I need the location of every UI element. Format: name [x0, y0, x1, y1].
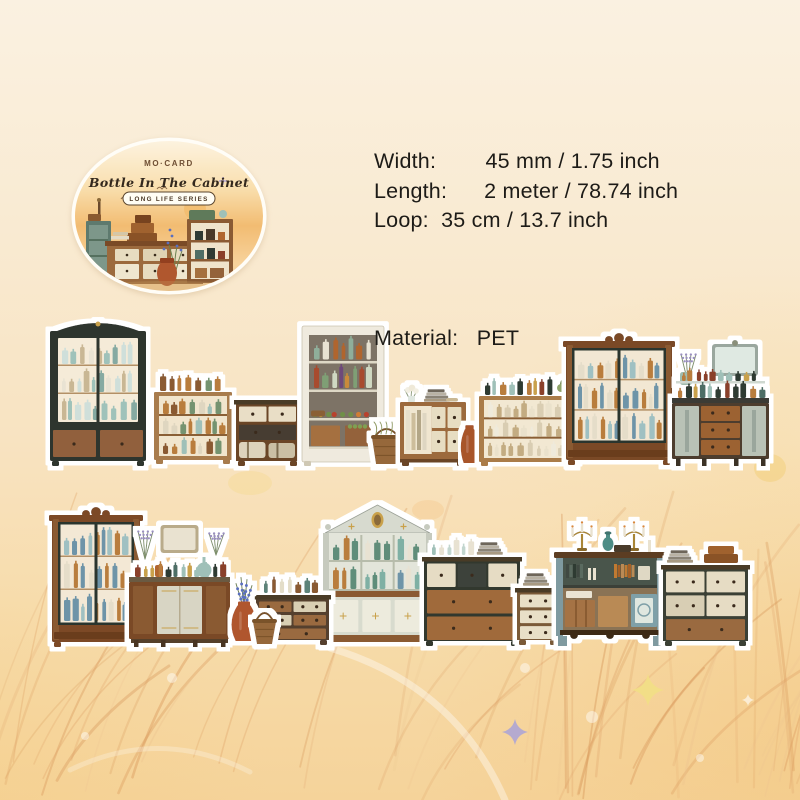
vanity-dresser	[129, 525, 230, 647]
spec-dimensions: Width: 45 mm / 1.75 inch Length: 2 meter…	[374, 147, 678, 236]
brand-badge: MO·CARD Bottle In The Cabinet LONG LIFE …	[71, 137, 267, 295]
book-drawer-unit	[515, 573, 561, 645]
candelabra-sideboard	[554, 521, 666, 646]
spec-material: Material: PET	[374, 324, 678, 354]
badge-series-label: LONG LIFE SERIES	[129, 196, 208, 203]
dark-armoire	[49, 507, 143, 647]
box-chest	[661, 546, 750, 646]
badge-product-title: Bottle In The Cabinet	[88, 175, 249, 190]
product-image: MO·CARD Bottle In The Cabinet LONG LIFE …	[0, 0, 800, 800]
pediment-hutch	[323, 505, 432, 646]
linen-chest	[422, 537, 522, 646]
terracotta-flower-vase	[232, 578, 257, 641]
brand-logo-text: MO·CARD	[144, 159, 194, 168]
product-specs: Width: 45 mm / 1.75 inch Length: 2 meter…	[374, 88, 678, 413]
